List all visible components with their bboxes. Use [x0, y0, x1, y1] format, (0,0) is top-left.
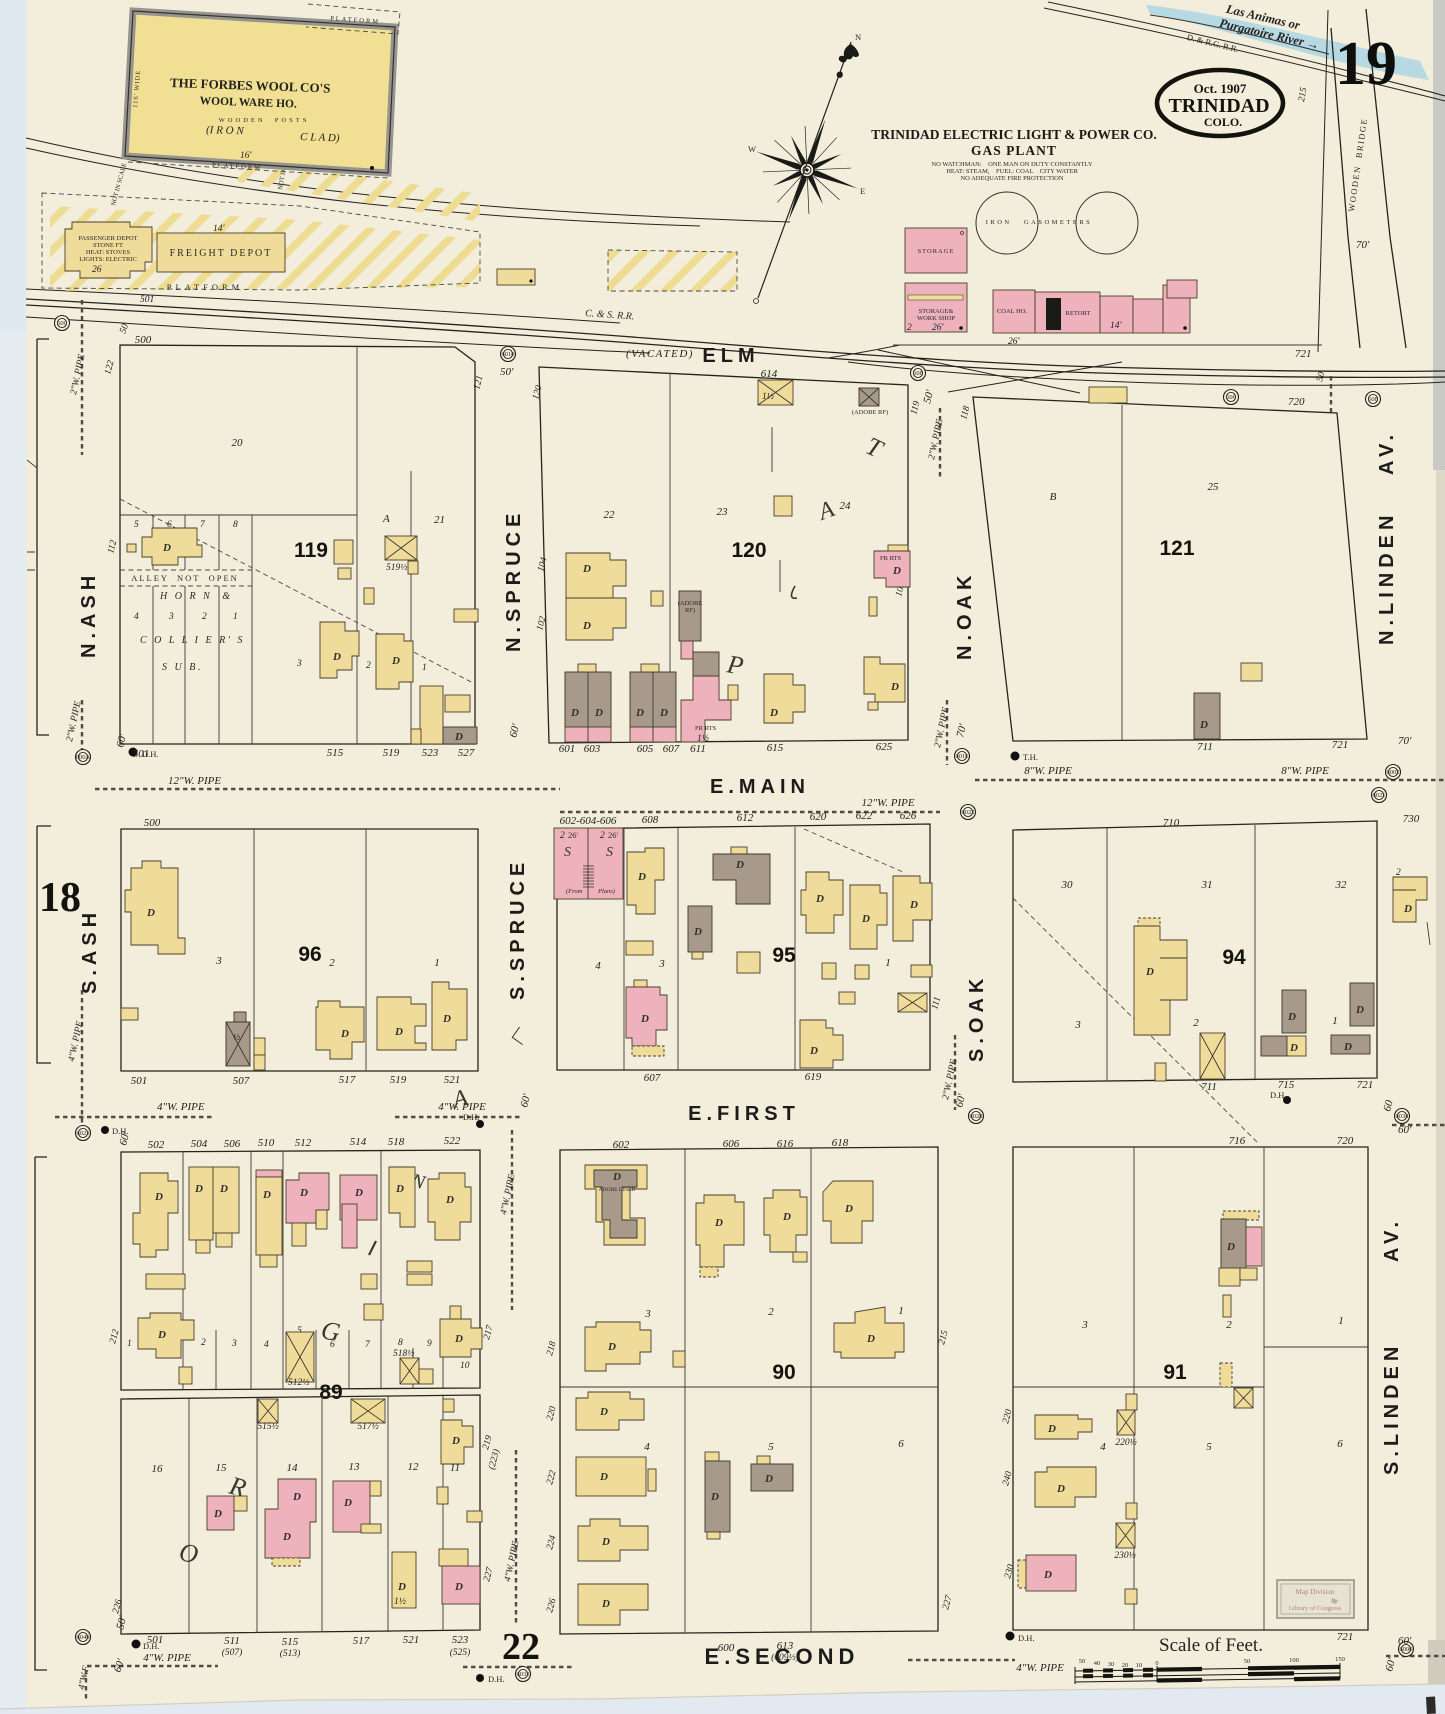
svg-text:22: 22 — [502, 1626, 540, 1668]
svg-text:507: 507 — [233, 1075, 250, 1087]
svg-text:COAL HO.: COAL HO. — [997, 308, 1027, 315]
svg-text:D: D — [815, 893, 824, 905]
svg-text:1: 1 — [422, 663, 427, 673]
svg-text:D: D — [340, 1028, 349, 1040]
svg-text:3: 3 — [231, 1339, 237, 1349]
svg-text:512: 512 — [295, 1137, 312, 1149]
svg-text:501: 501 — [140, 295, 154, 305]
svg-text:LIGHTS: ELECTRIC: LIGHTS: ELECTRIC — [79, 256, 137, 263]
svg-text:AV.: AV. — [1381, 1217, 1403, 1262]
svg-text:606: 606 — [1226, 394, 1237, 401]
svg-text:19: 19 — [1335, 30, 1397, 98]
svg-text:616: 616 — [777, 1138, 794, 1150]
svg-text:517½: 517½ — [357, 1421, 378, 1432]
svg-text:S.ASH: S.ASH — [79, 908, 101, 994]
svg-text:519: 519 — [383, 747, 400, 759]
svg-text:A: A — [382, 513, 390, 525]
svg-text:12"W. PIPE: 12"W. PIPE — [861, 797, 914, 809]
svg-text:2: 2 — [329, 957, 335, 969]
svg-text:3: 3 — [168, 612, 174, 622]
svg-text:721: 721 — [1295, 348, 1312, 360]
svg-text:D: D — [157, 1329, 166, 1341]
svg-text:30: 30 — [1108, 1661, 1115, 1668]
svg-text:6023: 6023 — [77, 1130, 90, 1137]
svg-text:8: 8 — [398, 1338, 403, 1348]
svg-text:AV.: AV. — [1376, 430, 1398, 475]
svg-text:517: 517 — [339, 1074, 356, 1086]
svg-text:1: 1 — [434, 957, 440, 969]
svg-text:D: D — [599, 1406, 608, 1418]
svg-text:4: 4 — [595, 960, 601, 972]
svg-text:S U B.: S U B. — [162, 662, 203, 673]
svg-text:521: 521 — [444, 1074, 461, 1086]
svg-text:600: 600 — [718, 1642, 735, 1654]
svg-text:6010: 6010 — [502, 351, 515, 358]
svg-text:WORK SHOP: WORK SHOP — [917, 315, 955, 322]
svg-text:600: 600 — [57, 320, 67, 327]
svg-text:D: D — [582, 563, 591, 575]
svg-text:E: E — [860, 186, 865, 196]
svg-text:Map Division: Map Division — [1296, 1588, 1335, 1596]
svg-text:PLATFORM: PLATFORM — [167, 282, 243, 292]
svg-text:50: 50 — [1244, 1658, 1251, 1665]
svg-text:230½: 230½ — [1114, 1550, 1135, 1561]
svg-text:8"W. PIPE: 8"W. PIPE — [1024, 765, 1072, 777]
svg-text:3: 3 — [1081, 1319, 1088, 1331]
svg-text:D: D — [764, 1473, 773, 1485]
svg-text:607: 607 — [644, 1072, 661, 1084]
svg-text:D: D — [570, 707, 579, 719]
svg-text:FR RTS: FR RTS — [695, 725, 716, 732]
svg-text:RF): RF) — [685, 607, 695, 614]
svg-text:D: D — [599, 1471, 608, 1483]
svg-text:D: D — [454, 731, 463, 743]
svg-text:D: D — [866, 1333, 875, 1345]
svg-text:622: 622 — [856, 810, 873, 822]
svg-text:D: D — [1355, 1004, 1364, 1016]
svg-text:605: 605 — [637, 743, 654, 755]
svg-text:4: 4 — [134, 612, 139, 622]
svg-text:2: 2 — [366, 661, 371, 671]
svg-text:620: 620 — [810, 811, 827, 823]
svg-text:2: 2 — [600, 831, 605, 841]
svg-text:E.FIRST: E.FIRST — [688, 1103, 800, 1125]
svg-text:2: 2 — [907, 323, 912, 333]
svg-text:40: 40 — [1094, 1660, 1101, 1667]
svg-text:D: D — [1199, 719, 1208, 731]
svg-text:26': 26' — [932, 323, 945, 333]
svg-text:603: 603 — [584, 743, 601, 755]
svg-text:FR RTS: FR RTS — [880, 555, 901, 562]
svg-text:Oct. 1907: Oct. 1907 — [1194, 81, 1247, 96]
svg-text:614: 614 — [761, 368, 778, 380]
svg-text:6: 6 — [898, 1438, 904, 1450]
svg-text:720: 720 — [1337, 1135, 1354, 1147]
svg-text:60': 60' — [1398, 1635, 1412, 1647]
svg-text:D.H.: D.H. — [1018, 1633, 1035, 1643]
svg-text:ALLEY NOT OPEN: ALLEY NOT OPEN — [131, 573, 239, 583]
svg-text:D: D — [213, 1508, 222, 1520]
svg-text:15: 15 — [216, 1462, 228, 1474]
svg-text:606: 606 — [723, 1138, 740, 1150]
svg-text:H O R N &: H O R N & — [159, 591, 233, 602]
svg-text:4: 4 — [1100, 1441, 1106, 1453]
svg-text:619: 619 — [805, 1071, 822, 1083]
svg-text:91: 91 — [1163, 1361, 1187, 1384]
svg-text:D.H.: D.H. — [1270, 1090, 1287, 1100]
svg-text:501: 501 — [133, 748, 150, 760]
svg-text:608: 608 — [642, 814, 659, 826]
svg-text:601: 601 — [559, 743, 576, 755]
svg-text:1: 1 — [1338, 1315, 1344, 1327]
svg-text:E.MAIN: E.MAIN — [710, 776, 810, 798]
svg-text:D.H.: D.H. — [488, 1674, 505, 1684]
svg-text:D: D — [282, 1531, 291, 1543]
svg-text:D: D — [162, 542, 171, 554]
svg-text:150: 150 — [1335, 1656, 1345, 1663]
svg-text:94: 94 — [1222, 946, 1246, 969]
svg-text:720: 720 — [1288, 396, 1305, 408]
svg-text:D: D — [890, 681, 899, 693]
svg-text:D: D — [594, 707, 603, 719]
svg-text:23: 23 — [717, 506, 729, 518]
svg-text:GAS PLANT: GAS PLANT — [971, 143, 1057, 158]
svg-text:1½: 1½ — [762, 391, 774, 402]
svg-text:(I R O N: (I R O N — [206, 124, 245, 137]
svg-text:D: D — [1043, 1569, 1052, 1581]
svg-text:WOODEN POSTS: WOODEN POSTS — [219, 117, 310, 124]
svg-text:608: 608 — [1368, 396, 1378, 403]
svg-text:4"W. PIPE: 4"W. PIPE — [1016, 1662, 1064, 1674]
svg-text:Scale of Feet.: Scale of Feet. — [1159, 1635, 1263, 1656]
svg-text:(ADOBE: (ADOBE — [678, 600, 703, 607]
svg-text:D: D — [299, 1187, 308, 1199]
svg-text:18: 18 — [39, 875, 81, 921]
svg-text:1½: 1½ — [394, 1596, 406, 1607]
svg-text:B: B — [1050, 491, 1057, 503]
svg-text:220½: 220½ — [1115, 1437, 1136, 1448]
svg-text:501: 501 — [147, 1634, 164, 1646]
svg-text:COLO.: COLO. — [1204, 115, 1242, 129]
svg-text:(513): (513) — [280, 1648, 301, 1659]
svg-text:½: ½ — [233, 1032, 240, 1043]
svg-text:716: 716 — [1229, 1135, 1246, 1147]
svg-text:4: 4 — [644, 1441, 650, 1453]
svg-text:3: 3 — [296, 659, 302, 669]
svg-text:119: 119 — [294, 539, 328, 562]
svg-text:504: 504 — [191, 1138, 208, 1150]
svg-text:506: 506 — [224, 1138, 241, 1150]
svg-text:510: 510 — [258, 1137, 275, 1149]
svg-text:89: 89 — [319, 1381, 342, 1404]
svg-text:521: 521 — [403, 1634, 420, 1646]
svg-text:710: 710 — [1163, 817, 1180, 829]
svg-text:502: 502 — [148, 1139, 165, 1151]
svg-text:N.ASH: N.ASH — [78, 571, 100, 658]
svg-text:(VACATED): (VACATED) — [626, 348, 694, 360]
svg-text:6021: 6021 — [1373, 792, 1386, 799]
svg-text:611: 611 — [690, 743, 706, 755]
svg-text:3: 3 — [215, 955, 222, 967]
svg-text:612: 612 — [737, 812, 754, 824]
svg-text:518: 518 — [388, 1136, 405, 1148]
svg-text:D: D — [1226, 1241, 1235, 1253]
svg-text:60': 60' — [1398, 1124, 1412, 1136]
svg-text:22: 22 — [604, 509, 616, 521]
svg-text:IRON GASOMETERS: IRON GASOMETERS — [986, 219, 1093, 226]
svg-text:501: 501 — [131, 1075, 148, 1087]
svg-text:S.SPRUCE: S.SPRUCE — [507, 858, 529, 1000]
svg-text:618: 618 — [832, 1137, 849, 1149]
svg-text:D.H.: D.H. — [463, 1112, 480, 1122]
svg-text:2: 2 — [560, 831, 565, 841]
svg-text:C O L L I E R' S: C O L L I E R' S — [140, 635, 245, 646]
svg-text:121: 121 — [1159, 537, 1194, 560]
svg-text:D: D — [612, 1171, 621, 1183]
svg-text:715: 715 — [1278, 1079, 1295, 1091]
svg-text:RETORT: RETORT — [1066, 310, 1091, 317]
svg-text:3: 3 — [1074, 1019, 1081, 1031]
svg-text:D: D — [391, 655, 400, 667]
svg-text:D: D — [861, 913, 870, 925]
svg-text:26': 26' — [568, 830, 579, 840]
svg-text:6033: 6033 — [517, 1671, 530, 1678]
svg-text:1: 1 — [127, 1339, 132, 1349]
svg-text:D: D — [637, 871, 646, 883]
svg-text:D: D — [659, 707, 668, 719]
svg-text:D: D — [343, 1497, 352, 1509]
svg-text:D: D — [809, 1045, 818, 1057]
svg-text:D: D — [262, 1189, 271, 1201]
svg-text:W: W — [748, 144, 756, 154]
svg-text:N: N — [855, 32, 861, 42]
svg-text:21: 21 — [434, 514, 445, 526]
svg-text:TRINIDAD: TRINIDAD — [1168, 95, 1269, 117]
svg-text:S: S — [564, 845, 571, 860]
svg-text:527: 527 — [458, 747, 475, 759]
svg-text:711: 711 — [1197, 741, 1213, 753]
svg-text:5: 5 — [134, 520, 139, 530]
svg-text:N.SPRUCE: N.SPRUCE — [503, 509, 525, 652]
svg-text:D: D — [782, 1211, 791, 1223]
svg-text:500: 500 — [144, 817, 161, 829]
svg-text:16: 16 — [152, 1463, 164, 1475]
svg-text:1: 1 — [233, 612, 238, 622]
svg-text:519½: 519½ — [386, 562, 407, 573]
svg-text:518½: 518½ — [393, 1348, 414, 1359]
svg-text:D: D — [397, 1581, 406, 1593]
svg-text:C L A D): C L A D) — [300, 131, 340, 144]
svg-text:D: D — [710, 1491, 719, 1503]
svg-text:721: 721 — [1332, 739, 1349, 751]
svg-text:2: 2 — [202, 612, 207, 622]
svg-text:D: D — [395, 1183, 404, 1195]
svg-text:512½: 512½ — [288, 1377, 309, 1388]
svg-text:Library of Congress: Library of Congress — [1289, 1605, 1342, 1612]
svg-text:30: 30 — [1061, 879, 1074, 891]
svg-text:HEAT: STOVES: HEAT: STOVES — [86, 249, 131, 256]
svg-text:D: D — [1287, 1011, 1296, 1023]
svg-text:13: 13 — [349, 1461, 361, 1473]
svg-text:14': 14' — [1110, 321, 1123, 331]
svg-text:16': 16' — [240, 151, 253, 161]
svg-text:D: D — [607, 1341, 616, 1353]
svg-text:626: 626 — [900, 810, 917, 822]
svg-text:D: D — [769, 707, 778, 719]
svg-text:D: D — [601, 1536, 610, 1548]
svg-text:D: D — [640, 1013, 649, 1025]
svg-text:615: 615 — [767, 742, 784, 754]
svg-text:N.OAK: N.OAK — [954, 571, 976, 660]
svg-text:514: 514 — [350, 1136, 367, 1148]
svg-text:25: 25 — [1208, 481, 1220, 493]
svg-text:D: D — [442, 1013, 451, 1025]
svg-text:2: 2 — [201, 1338, 206, 1348]
svg-text:ADOBE LINED: ADOBE LINED — [599, 1187, 636, 1193]
svg-text:D: D — [1056, 1483, 1065, 1495]
svg-text:20: 20 — [232, 437, 244, 449]
svg-text:14': 14' — [213, 224, 226, 234]
svg-text:2: 2 — [768, 1306, 774, 1318]
svg-text:D: D — [714, 1217, 723, 1229]
svg-text:70': 70' — [1398, 735, 1412, 747]
svg-text:D: D — [1403, 903, 1412, 915]
svg-text:523: 523 — [422, 747, 439, 759]
svg-text:HEAT: STEAM, FUEL: COAL: HEAT: STEAM, FUEL: COAL CITY WATER — [946, 168, 1078, 175]
svg-text:8: 8 — [233, 520, 238, 530]
svg-text:3: 3 — [658, 958, 665, 970]
svg-text:600A: 600A — [76, 754, 91, 761]
svg-text:(525): (525) — [450, 1647, 471, 1658]
svg-text:10: 10 — [1136, 1662, 1143, 1669]
svg-text:FREIGHT DEPOT: FREIGHT DEPOT — [170, 248, 273, 259]
svg-text:PASSENGER DEPOT: PASSENGER DEPOT — [78, 235, 137, 242]
svg-text:ELM: ELM — [702, 345, 759, 367]
svg-text:8"W. PIPE: 8"W. PIPE — [1281, 765, 1329, 777]
svg-text:D: D — [154, 1191, 163, 1203]
svg-text:602: 602 — [613, 1139, 630, 1151]
svg-text:4"W. PIPE: 4"W. PIPE — [157, 1101, 205, 1113]
svg-text:0: 0 — [1155, 1660, 1158, 1667]
svg-text:602-604-606: 602-604-606 — [560, 815, 617, 827]
svg-text:6000: 6000 — [1400, 1646, 1413, 1653]
svg-text:NO WATCHMAN: ONE MAN ON DUT: NO WATCHMAN: ONE MAN ON DUTY CONSTANTLY — [931, 161, 1092, 168]
svg-text:D: D — [1047, 1423, 1056, 1435]
svg-text:(507): (507) — [222, 1647, 243, 1658]
svg-text:70': 70' — [1356, 239, 1370, 251]
svg-text:26': 26' — [1008, 337, 1021, 347]
svg-text:31: 31 — [1201, 879, 1213, 891]
svg-text:24: 24 — [840, 500, 852, 512]
svg-text:D: D — [844, 1203, 853, 1215]
svg-text:Plans): Plans) — [597, 888, 615, 895]
svg-text:(609½): (609½) — [771, 1652, 799, 1663]
svg-text:50': 50' — [500, 366, 514, 378]
svg-text:D: D — [601, 1598, 610, 1610]
svg-text:2: 2 — [1396, 868, 1401, 878]
svg-text:STONE FT: STONE FT — [93, 242, 123, 249]
svg-text:D: D — [735, 859, 744, 871]
svg-text:607: 607 — [663, 743, 680, 755]
svg-text:STORAGE: STORAGE — [918, 248, 955, 255]
svg-text:120: 120 — [731, 539, 766, 562]
svg-text:D: D — [582, 620, 591, 632]
svg-text:3: 3 — [644, 1308, 651, 1320]
svg-text:26': 26' — [608, 830, 619, 840]
svg-text:1½: 1½ — [697, 733, 709, 744]
svg-text:D: D — [693, 926, 702, 938]
svg-text:5: 5 — [768, 1441, 774, 1453]
svg-text:6034: 6034 — [1396, 1113, 1410, 1120]
svg-text:D: D — [332, 651, 341, 663]
svg-text:S: S — [606, 845, 613, 860]
svg-text:D: D — [354, 1187, 363, 1199]
svg-text:26: 26 — [92, 265, 102, 275]
svg-text:515: 515 — [327, 747, 344, 759]
svg-text:(ADOBE RF): (ADOBE RF) — [852, 409, 888, 416]
svg-text:625: 625 — [876, 741, 893, 753]
svg-text:4"W. PIPE: 4"W. PIPE — [143, 1652, 191, 1664]
svg-text:4: 4 — [264, 1340, 269, 1350]
svg-text:90: 90 — [772, 1361, 795, 1384]
svg-text:1: 1 — [1332, 1015, 1338, 1027]
svg-text:D: D — [445, 1194, 454, 1206]
svg-text:515½: 515½ — [257, 1421, 278, 1432]
svg-text:32: 32 — [1335, 879, 1348, 891]
svg-text:519: 519 — [390, 1074, 407, 1086]
svg-text:(From: (From — [566, 888, 583, 895]
svg-text:2: 2 — [1226, 1319, 1232, 1331]
svg-text:S.LINDEN: S.LINDEN — [1381, 1342, 1403, 1475]
svg-text:608: 608 — [913, 370, 923, 377]
svg-text:D: D — [1289, 1042, 1298, 1054]
svg-text:1: 1 — [885, 957, 891, 969]
svg-text:14: 14 — [287, 1462, 299, 1474]
svg-text:1: 1 — [898, 1305, 904, 1317]
svg-text:N.LINDEN: N.LINDEN — [1376, 511, 1398, 645]
svg-text:20: 20 — [1122, 1662, 1129, 1669]
svg-text:TRINIDAD ELECTRIC LIGHT & POWE: TRINIDAD ELECTRIC LIGHT & POWER CO. — [871, 127, 1157, 142]
svg-text:721: 721 — [1357, 1079, 1374, 1091]
svg-text:2: 2 — [1193, 1017, 1199, 1029]
svg-text:D: D — [909, 899, 918, 911]
svg-text:S.OAK: S.OAK — [966, 974, 988, 1062]
svg-text:500: 500 — [135, 334, 152, 346]
svg-text:12"W. PIPE: 12"W. PIPE — [168, 775, 221, 787]
svg-text:6049: 6049 — [77, 1634, 90, 1641]
svg-text:D: D — [1343, 1041, 1352, 1053]
svg-text:D: D — [219, 1183, 228, 1195]
svg-text:D: D — [194, 1183, 203, 1195]
svg-text:6016: 6016 — [956, 753, 970, 760]
svg-text:D: D — [292, 1491, 301, 1503]
svg-text:5: 5 — [1206, 1441, 1212, 1453]
svg-text:T.H.: T.H. — [1023, 752, 1038, 762]
svg-text:D: D — [635, 707, 644, 719]
svg-text:6022: 6022 — [962, 809, 975, 816]
svg-text:10: 10 — [460, 1361, 470, 1371]
svg-text:D: D — [146, 907, 155, 919]
svg-text:NO ADEQUATE FIRE PROTECTION: NO ADEQUATE FIRE PROTECTION — [960, 175, 1063, 182]
svg-text:522: 522 — [444, 1135, 461, 1147]
svg-text:517: 517 — [353, 1635, 370, 1647]
svg-text:12: 12 — [408, 1461, 420, 1473]
svg-text:D: D — [454, 1333, 463, 1345]
svg-text:6002: 6002 — [1387, 769, 1400, 776]
svg-text:D: D — [892, 565, 901, 577]
svg-text:515: 515 — [282, 1636, 299, 1648]
svg-text:613: 613 — [777, 1640, 794, 1652]
